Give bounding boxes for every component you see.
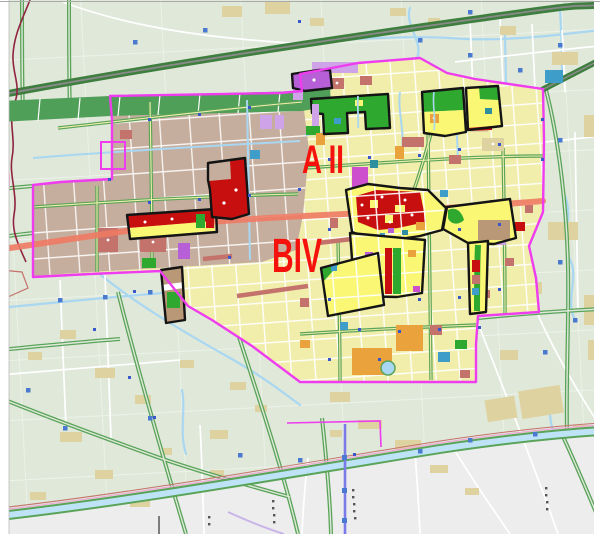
district-purple <box>292 70 332 91</box>
district-label-biv: BIV <box>272 230 322 283</box>
district-label-aii: A II <box>302 138 344 182</box>
district-mixed-b <box>466 86 502 131</box>
pond <box>381 361 395 375</box>
zoning-map-screenshot: A II BIV <box>0 0 600 534</box>
zoning-map: A II BIV <box>0 0 600 534</box>
district-mixed-a <box>422 88 466 136</box>
district-red-tall <box>208 158 249 219</box>
